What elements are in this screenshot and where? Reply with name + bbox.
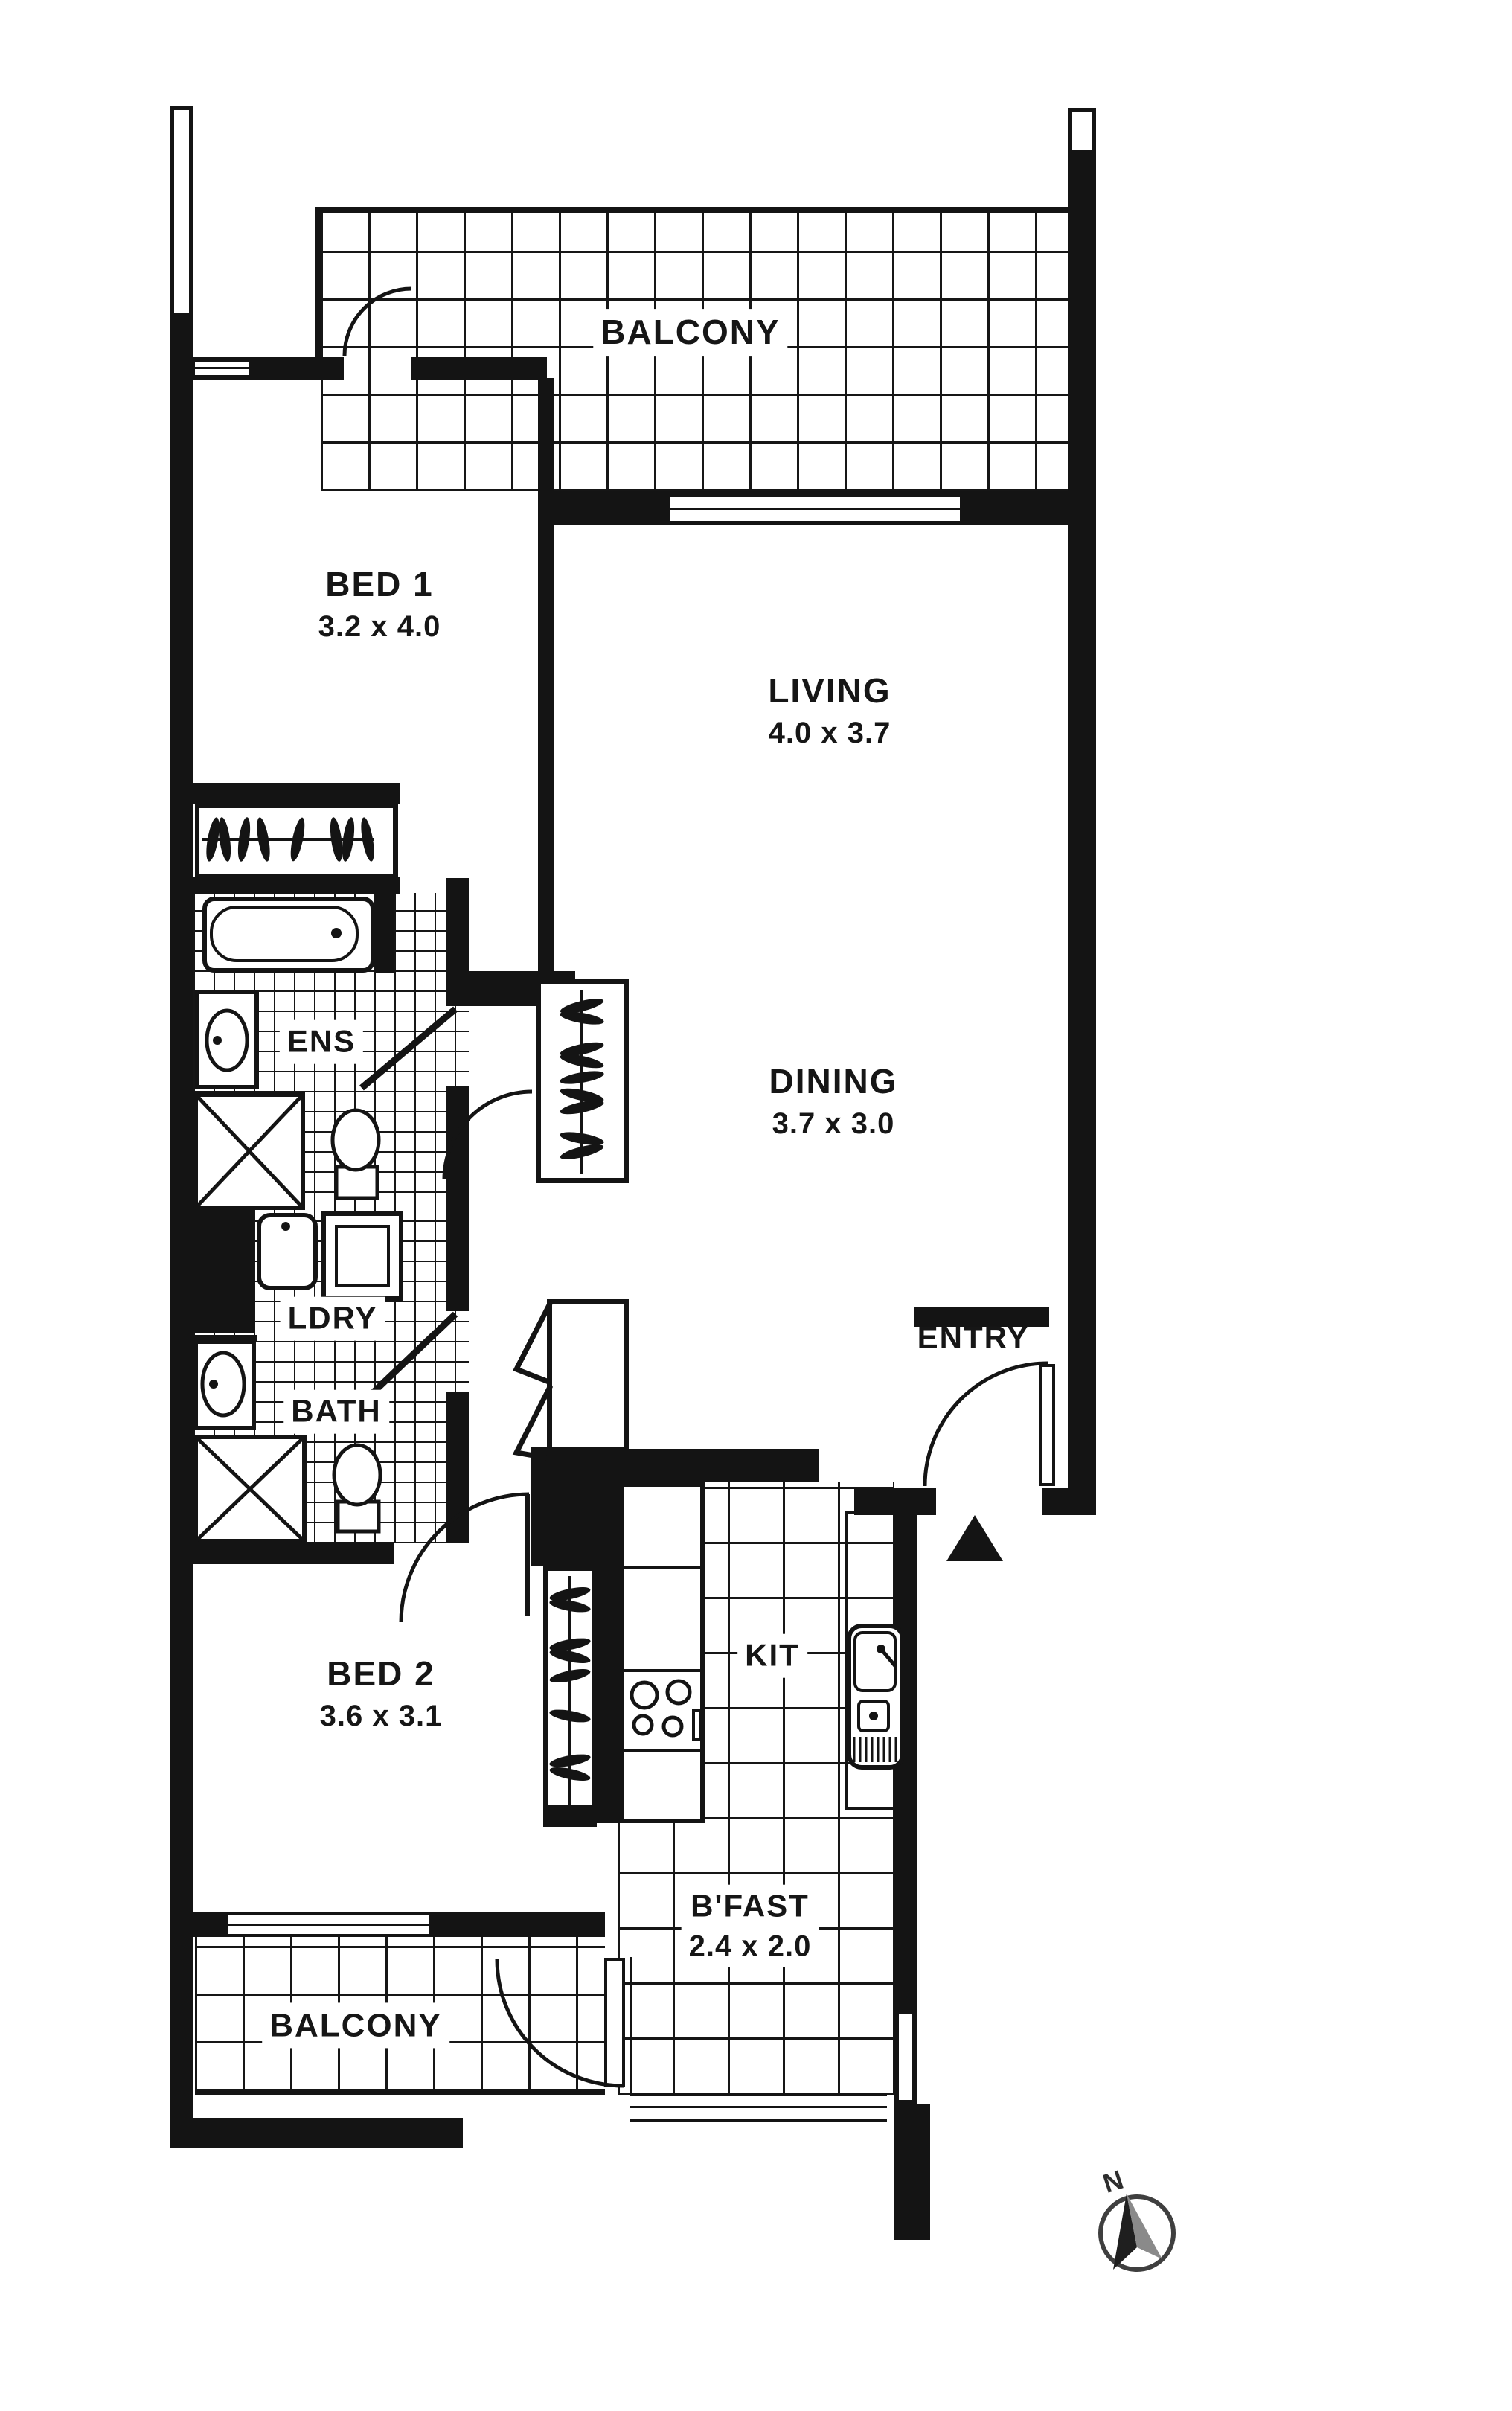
kitchen-east-wall-hollow <box>894 2009 917 2104</box>
bed2-north-wall <box>192 1542 394 1564</box>
ens-east-wall-a <box>446 878 469 1006</box>
ens-label: ENS <box>280 1020 363 1064</box>
balcony-south-wall <box>170 2118 463 2148</box>
bfast-glass-edge <box>630 1957 632 2095</box>
bfast-label: B'FAST 2.4 x 2.0 <box>682 1885 819 1967</box>
bed1-wardrobe <box>195 804 397 878</box>
dining-label: DINING 3.7 x 3.0 <box>762 1058 906 1144</box>
robe2-end-cap <box>543 1808 597 1827</box>
east-wall-hollow <box>1068 108 1096 154</box>
sink-basin-small <box>857 1700 890 1732</box>
bath-east-wall <box>446 1392 469 1542</box>
southeast-corner-wall <box>894 2104 930 2240</box>
west-wall-hollow <box>170 106 193 317</box>
bed1-label: BED 1 3.2 x 4.0 <box>311 561 449 647</box>
living-sliding-door <box>670 494 960 524</box>
laundry-duct-wall <box>192 1205 254 1333</box>
balcony-top-label: BALCONY <box>593 309 787 356</box>
bifold-door-zigzag <box>516 1302 551 1383</box>
bfast-balustrade <box>630 2093 887 2122</box>
west-wall <box>170 314 193 2147</box>
counter-divider-2 <box>619 1669 705 1672</box>
counter-edge-top <box>845 1511 894 1514</box>
bed1-north-wall2 <box>411 357 547 380</box>
sink-basin-main <box>853 1631 897 1692</box>
cooktop-handle <box>692 1709 702 1741</box>
kitchen-north-wall <box>531 1449 819 1482</box>
tub-alcove-wall <box>375 893 394 973</box>
bath-shower <box>193 1435 307 1543</box>
bed2-east-wall <box>597 1485 619 1823</box>
entry-label: ENTRY <box>910 1316 1037 1360</box>
compass-n-label: N <box>1099 2164 1127 2200</box>
compass-north-icon <box>1101 2194 1173 2270</box>
counter-divider-1 <box>619 1566 705 1569</box>
bed2-wardrobe <box>543 1566 597 1810</box>
laundry-tub <box>257 1213 318 1290</box>
bifold-closet <box>547 1299 629 1453</box>
bed2-south-wall-b <box>429 1912 605 1937</box>
bed1-north-window <box>195 359 249 378</box>
kitchen-counter-column <box>619 1482 705 1823</box>
balcony-bottom-rail <box>195 2091 605 2095</box>
kit-label: KIT <box>737 1634 807 1678</box>
linen-closet <box>536 979 629 1183</box>
bath-vanity <box>193 1339 256 1430</box>
ens-east-wall-b <box>446 1086 469 1311</box>
balcony-door-leaf <box>604 1958 625 2087</box>
counter-divider-3 <box>619 1749 705 1752</box>
bathtub <box>202 897 375 973</box>
balcony-bottom-label: BALCONY <box>262 2002 449 2048</box>
bed2-south-window <box>228 1912 429 1937</box>
entry-south-wall-b <box>1042 1488 1096 1515</box>
bed1-living-wall <box>538 378 554 972</box>
entry-door-arc <box>925 1363 1048 1486</box>
balcony-top-rail <box>315 207 1068 213</box>
east-wall <box>1068 151 1096 1513</box>
counter-edge-bottom <box>845 1807 894 1810</box>
ens-shower <box>193 1092 305 1210</box>
balcony-left-rail <box>315 213 321 378</box>
entry-door-leaf <box>1039 1364 1055 1486</box>
bed2-label: BED 2 3.6 x 3.1 <box>313 1650 450 1737</box>
living-label: LIVING 4.0 x 3.7 <box>760 667 898 754</box>
ens-vanity <box>195 990 259 1089</box>
robe1-ens-wall <box>192 877 400 894</box>
washing-machine-drum <box>335 1225 390 1287</box>
floor-plan: BALCONY BED 1 3.2 x 4.0 LIVING 4.0 x 3.7… <box>0 0 1512 2411</box>
ldry-label: LDRY <box>281 1297 385 1341</box>
bed1-south-wall <box>192 783 400 804</box>
bed2-south-wall-a <box>192 1912 228 1937</box>
bath-label: BATH <box>283 1390 389 1434</box>
entry-arrow-icon <box>946 1515 1003 1561</box>
